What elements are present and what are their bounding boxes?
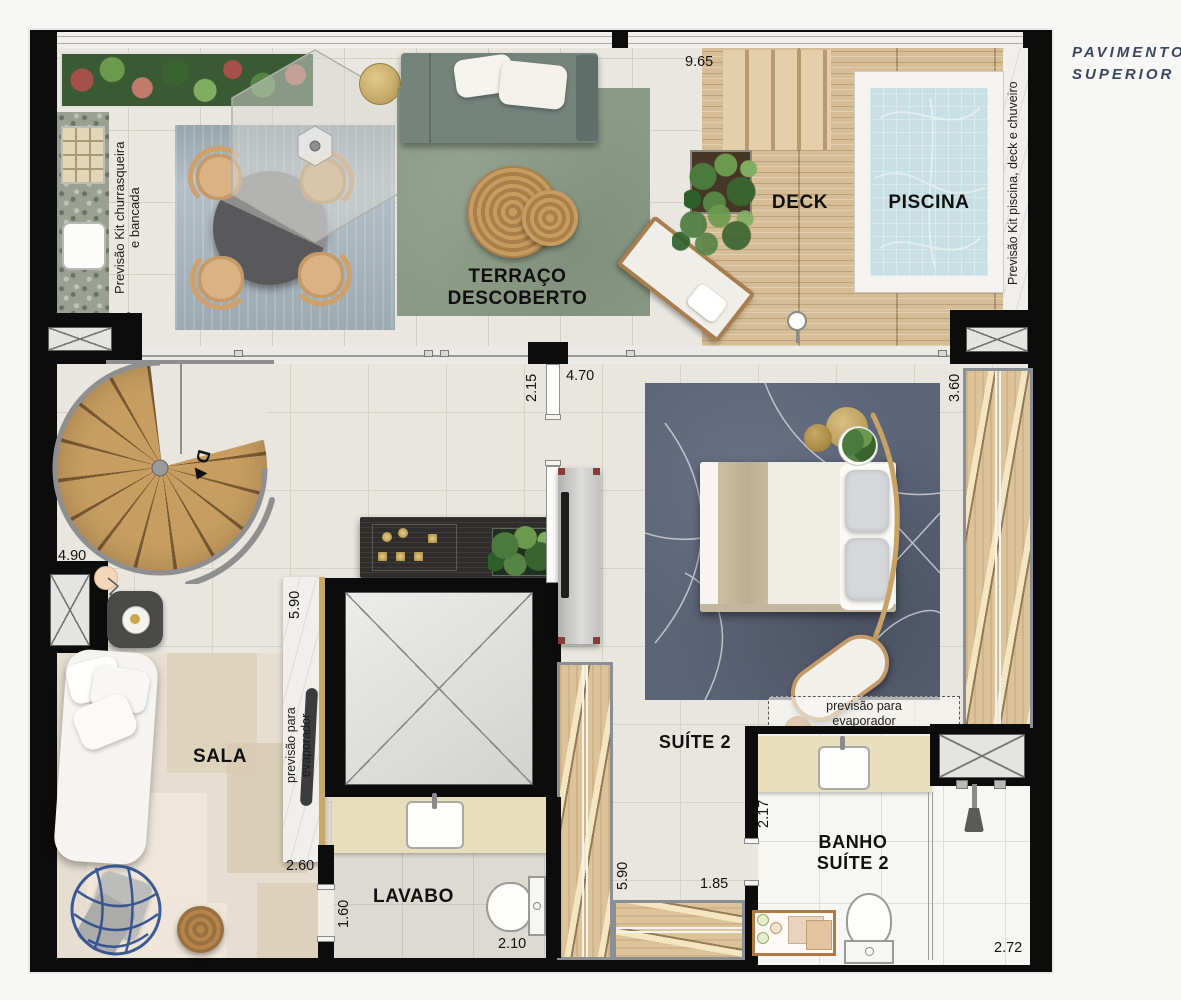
shaft-box-terrace-left bbox=[48, 327, 112, 351]
bath-accessory bbox=[757, 914, 769, 926]
dim-lavabo-width: 2.10 bbox=[498, 936, 526, 952]
page-title-line2: SUPERIOR bbox=[1072, 64, 1181, 86]
bath-accessory bbox=[757, 932, 769, 944]
shaft-box-central bbox=[345, 592, 533, 785]
lavabo-faucet-icon bbox=[432, 793, 437, 809]
floor-plan-canvas: PISCINA DECK 9.65 Previsão Kit churrasqu… bbox=[0, 0, 1181, 1000]
sideboard-knob bbox=[378, 552, 387, 561]
dim-terrace-width: 9.65 bbox=[685, 54, 713, 70]
wall-stub-top bbox=[612, 30, 628, 50]
cabinet-corner bbox=[593, 637, 600, 644]
cabinet-corner bbox=[593, 468, 600, 475]
cabinet-corner bbox=[558, 468, 565, 475]
wall-suite-north-seg bbox=[546, 364, 560, 416]
shaft-box-terrace-right bbox=[966, 327, 1028, 352]
wall-t-pier bbox=[528, 342, 568, 363]
shaft-box-left bbox=[50, 574, 90, 646]
pool-note: Previsão Kit piscina, deck e chuveiro bbox=[1006, 56, 1026, 310]
shower-valve bbox=[994, 780, 1006, 789]
lavabo-door-gap bbox=[318, 884, 334, 942]
wicker-tray-small bbox=[522, 190, 578, 246]
shower-glass-partition bbox=[928, 792, 933, 960]
dim-counter: 5.90 bbox=[287, 583, 303, 627]
page-title-line1: PAVIMENTO bbox=[1072, 42, 1181, 64]
banho-faucet-icon bbox=[840, 736, 845, 750]
wall-lavabo-west-lower bbox=[318, 942, 334, 958]
sideboard-knob bbox=[414, 552, 423, 561]
banho-door-jamb bbox=[744, 880, 759, 886]
bed-sheet-edge bbox=[700, 462, 718, 612]
banho-toilet-bowl bbox=[846, 893, 892, 947]
deck-label: DECK bbox=[755, 192, 845, 214]
shower-stem bbox=[972, 784, 977, 810]
suite-tv bbox=[561, 492, 569, 598]
dim-hall: 2.15 bbox=[524, 366, 540, 410]
bedside-plant bbox=[842, 428, 876, 462]
dim-closet: 3.60 bbox=[947, 366, 963, 410]
bbq-note-line2: e bancada bbox=[127, 118, 142, 318]
dining-chair-se bbox=[298, 252, 344, 298]
suite-label: SUÍTE 2 bbox=[645, 731, 745, 753]
sideboard-knob bbox=[382, 532, 392, 542]
banho-door-jamb bbox=[744, 838, 759, 844]
pool-water bbox=[870, 88, 988, 276]
daybed-armrest bbox=[576, 55, 598, 141]
shower-valve bbox=[956, 780, 968, 789]
terraco-label: TERRAÇO DESCOBERTO bbox=[425, 266, 610, 310]
door-handle-3 bbox=[440, 350, 449, 357]
table-lamp-center bbox=[130, 614, 140, 624]
door-handle-4 bbox=[626, 350, 635, 357]
banho-sink bbox=[818, 746, 870, 790]
lavabo-toilet-button bbox=[533, 902, 541, 910]
wall-lavabo-west-upper bbox=[318, 845, 334, 884]
sala-label: SALA bbox=[180, 746, 260, 768]
sideboard-knob bbox=[428, 534, 437, 543]
pool-caustics bbox=[870, 88, 988, 276]
dim-suite-top: 4.70 bbox=[566, 368, 594, 384]
bbq-sink bbox=[62, 222, 106, 270]
terraco-label-line2: DESCOBERTO bbox=[425, 288, 610, 310]
bed-blanket-fold bbox=[718, 462, 768, 612]
lavabo-door-jamb bbox=[317, 884, 335, 890]
lavabo-door-jamb bbox=[317, 936, 335, 942]
dim-suite-side: 5.90 bbox=[615, 854, 631, 898]
suite-closet-bottom bbox=[613, 900, 745, 960]
banho-label-line2: SUÍTE 2 bbox=[798, 853, 908, 874]
gold-side-table bbox=[359, 63, 401, 105]
hanging-chair bbox=[64, 858, 168, 962]
dining-chair-sw bbox=[198, 256, 244, 302]
bbq-note: Previsão Kit churrasqueira e bancada bbox=[112, 118, 148, 318]
evap-note-sala: previsão para evaporador bbox=[284, 665, 314, 825]
lavabo-toilet-bowl bbox=[486, 882, 532, 932]
evap-note-sala-line1: previsão para bbox=[284, 665, 299, 825]
door-handle-2 bbox=[424, 350, 433, 357]
dim-corridor: 1.85 bbox=[700, 876, 728, 892]
sideboard-knob bbox=[396, 552, 405, 561]
bbq-grill bbox=[61, 126, 105, 184]
sideboard-knob bbox=[398, 528, 408, 538]
dim-lavabo-door: 1.60 bbox=[336, 892, 352, 936]
page-title: PAVIMENTO SUPERIOR bbox=[1072, 42, 1181, 86]
banho-label: BANHO SUÍTE 2 bbox=[798, 832, 908, 874]
dim-banho-width: 2.72 bbox=[994, 940, 1022, 956]
pouf bbox=[177, 906, 224, 953]
terraco-label-line1: TERRAÇO bbox=[425, 266, 610, 288]
banho-label-line1: BANHO bbox=[798, 832, 908, 853]
suite-closet-right bbox=[963, 368, 1033, 728]
piscina-label: PISCINA bbox=[874, 192, 984, 214]
bbq-note-line1: Previsão Kit churrasqueira bbox=[112, 118, 127, 318]
outdoor-shower bbox=[787, 311, 807, 331]
banho-toilet-button bbox=[865, 947, 874, 956]
nesting-table-small bbox=[804, 424, 832, 452]
suite-closet-left bbox=[557, 662, 613, 960]
daybed-pillow-2 bbox=[498, 60, 568, 111]
deck-planter-foliage-2 bbox=[672, 202, 758, 258]
cabinet-corner bbox=[558, 637, 565, 644]
outdoor-shower-stem bbox=[796, 330, 799, 343]
sideboard-panel bbox=[372, 524, 457, 571]
door-handle-5 bbox=[938, 350, 947, 357]
suite-door-jamb bbox=[545, 414, 561, 420]
hanging-chair-frame bbox=[64, 858, 168, 962]
dim-sala: 2.60 bbox=[286, 858, 314, 874]
lavabo-label: LAVABO bbox=[356, 886, 471, 908]
wall-lavabo-east bbox=[546, 797, 561, 958]
towel-folded-2 bbox=[806, 920, 832, 950]
evap-note-suite-line1: previsão para bbox=[769, 699, 959, 714]
evap-note-sala-line2: evaporador bbox=[299, 665, 314, 825]
deck-vertical-boards bbox=[723, 50, 831, 150]
bath-accessory bbox=[770, 922, 782, 934]
dim-banho-side: 2.17 bbox=[756, 792, 772, 836]
shaft-box-banho bbox=[939, 734, 1025, 778]
parapet bbox=[57, 32, 1023, 48]
